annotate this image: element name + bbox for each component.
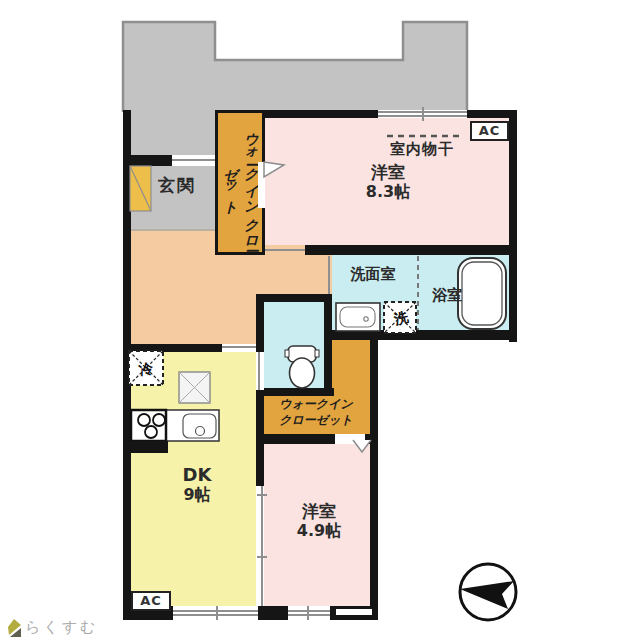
dk-size: 9帖 bbox=[166, 486, 228, 504]
dk-name: DK bbox=[166, 465, 228, 486]
compass-icon bbox=[460, 564, 516, 620]
rakusumu-logo-icon bbox=[8, 619, 21, 637]
refrigerator-icon: 冷 bbox=[129, 351, 163, 385]
bedroom-main-size: 8.3帖 bbox=[342, 183, 434, 201]
shoe-cabinet-icon bbox=[130, 166, 151, 211]
bedroom2-size: 4.9帖 bbox=[286, 522, 352, 540]
logo-text: らくすむ bbox=[25, 618, 98, 637]
toilet-icon bbox=[285, 346, 319, 388]
bedroom-main-name: 洋室 bbox=[342, 163, 434, 183]
dk-label: DK 9帖 bbox=[166, 465, 228, 504]
wic2-line1: ウォークイン bbox=[258, 396, 374, 412]
washroom-label: 洗面室 bbox=[336, 266, 410, 283]
entrance-label: 玄関 bbox=[150, 176, 204, 196]
washing-machine-icon: 洗 bbox=[384, 302, 416, 333]
wic2-label: ウォークイン クローゼット bbox=[258, 396, 374, 428]
wic2-door-marker-icon bbox=[353, 440, 371, 452]
ac-badge-bottom: AC bbox=[131, 591, 171, 611]
vanity-sink-icon bbox=[336, 303, 380, 331]
floorplan: ウォークインクローゼット 洗 bbox=[0, 0, 640, 640]
bathroom-label: 浴室 bbox=[424, 287, 470, 304]
bedroom2-label: 洋室 4.9帖 bbox=[286, 502, 352, 540]
bedroom-main-label: 洋室 8.3帖 bbox=[342, 163, 434, 201]
wic1-door-marker-icon bbox=[264, 162, 284, 177]
kitchen-sink-icon bbox=[183, 414, 216, 438]
bedroom2-name: 洋室 bbox=[286, 502, 352, 522]
wic2-line2: クローゼット bbox=[258, 412, 374, 428]
stove-icon bbox=[131, 410, 166, 441]
counter-space-icon bbox=[179, 372, 210, 403]
ac-badge-top: AC bbox=[470, 121, 509, 141]
drying-label: 室内物干 bbox=[373, 141, 471, 158]
fixtures-layer: 洗 冷 bbox=[0, 0, 640, 640]
counter-end-wall bbox=[124, 441, 168, 453]
